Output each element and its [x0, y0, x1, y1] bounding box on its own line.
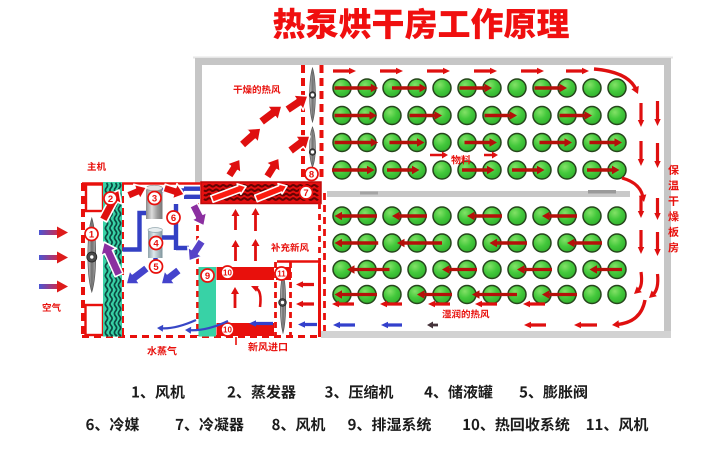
svg-text:10: 10 [223, 268, 232, 277]
svg-text:9: 9 [205, 271, 210, 282]
svg-text:6: 6 [171, 213, 176, 224]
svg-text:5: 5 [153, 262, 159, 273]
svg-text:8: 8 [309, 169, 314, 180]
svg-text:11: 11 [277, 269, 286, 278]
svg-text:10: 10 [223, 325, 232, 334]
svg-text:2: 2 [108, 194, 113, 205]
svg-text:1: 1 [89, 229, 95, 240]
svg-text:4: 4 [153, 238, 159, 249]
svg-text:3: 3 [152, 193, 157, 204]
svg-text:7: 7 [303, 188, 308, 199]
